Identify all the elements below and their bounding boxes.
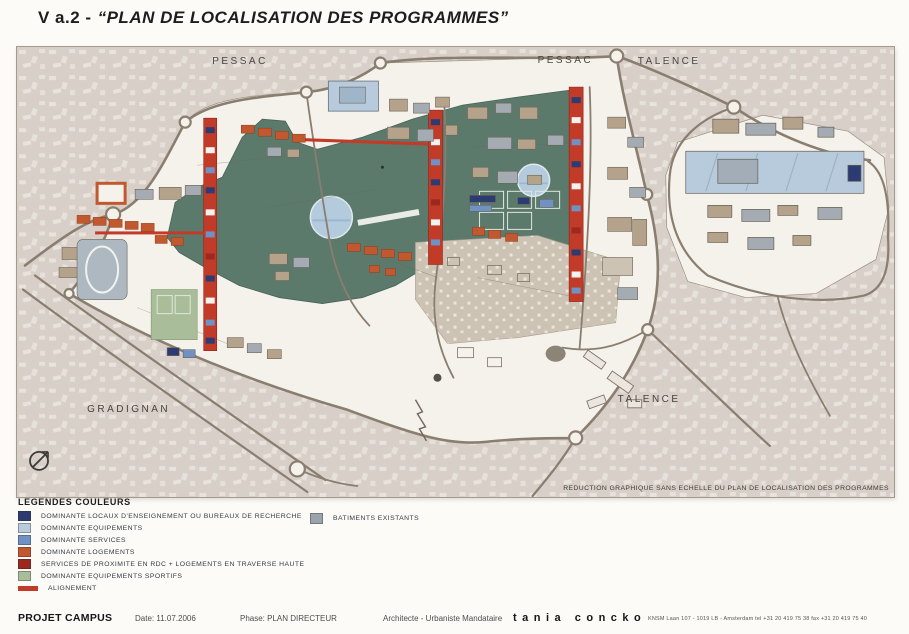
legend-item-logements: DOMINANTE LOGEMENTS: [18, 546, 898, 558]
title-text: “PLAN DE LOCALISATION DES PROGRAMMES”: [98, 8, 509, 27]
project-name: PROJET CAMPUS: [18, 612, 112, 624]
legend-item-label: SERVICES DE PROXIMITE EN RDC + LOGEMENTS…: [41, 561, 304, 568]
legend-item-label: BATIMENTS EXISTANTS: [333, 515, 419, 522]
label-talence-ne: TALENCE: [638, 56, 701, 67]
color-chip: [18, 571, 31, 581]
architect-name: tania concko: [513, 612, 646, 624]
color-chip: [18, 523, 31, 533]
map-drawing: PESSAC PESSAC TALENCE GRADIGNAN TALENCE …: [17, 47, 894, 497]
architect-role: Architecte - Urbaniste Mandataire: [383, 614, 502, 623]
legend-item-batiments-existants: BATIMENTS EXISTANTS: [310, 512, 419, 524]
color-chip: [18, 586, 38, 591]
legend-item-label: DOMINANTE EQUIPEMENTS SPORTIFS: [41, 573, 182, 580]
title-index: V a.2 -: [38, 8, 92, 27]
color-chip: [18, 535, 31, 545]
legend-item-alignement: ALIGNEMENT: [18, 582, 898, 594]
legend-item-label: ALIGNEMENT: [48, 585, 97, 592]
color-chip: [18, 511, 31, 521]
pond: [310, 196, 352, 238]
label-talence-se: TALENCE: [618, 394, 681, 405]
architect-address: KNSM Laan 107 - 1019 LB - Amsterdam tel …: [648, 616, 867, 622]
color-chip: [310, 513, 323, 524]
reduction-note: REDUCTION GRAPHIQUE SANS ECHELLE DU PLAN…: [563, 485, 889, 492]
document-page: V a.2 -“PLAN DE LOCALISATION DES PROGRAM…: [0, 0, 909, 634]
label-pessac-nw: PESSAC: [212, 56, 268, 67]
label-gradignan: GRADIGNAN: [87, 404, 170, 415]
legend-heading: LEGENDES COULEURS: [18, 497, 898, 507]
legend-item-equipements: DOMINANTE EQUIPEMENTS: [18, 522, 898, 534]
legend-item-services: DOMINANTE SERVICES: [18, 534, 898, 546]
label-pessac-n: PESSAC: [538, 55, 594, 66]
legend-item-proximite: SERVICES DE PROXIMITE EN RDC + LOGEMENTS…: [18, 558, 898, 570]
legend-item-label: DOMINANTE LOGEMENTS: [41, 549, 135, 556]
localisation-map: PESSAC PESSAC TALENCE GRADIGNAN TALENCE …: [16, 46, 895, 498]
date-field: Date: 11.07.2006: [135, 614, 196, 623]
legend-item-enseignement: DOMINANTE LOCAUX D'ENSEIGNEMENT OU BUREA…: [18, 510, 898, 522]
phase-field: Phase: PLAN DIRECTEUR: [240, 614, 337, 623]
legend-item-label: DOMINANTE EQUIPEMENTS: [41, 525, 143, 532]
color-chip: [18, 547, 31, 557]
legend: LEGENDES COULEURS DOMINANTE LOCAUX D'ENS…: [18, 497, 898, 594]
legend-item-sportifs: DOMINANTE EQUIPEMENTS SPORTIFS: [18, 570, 898, 582]
page-title: V a.2 -“PLAN DE LOCALISATION DES PROGRAM…: [38, 8, 509, 28]
legend-item-label: DOMINANTE LOCAUX D'ENSEIGNEMENT OU BUREA…: [41, 513, 302, 520]
title-block-footer: PROJET CAMPUS Date: 11.07.2006 Phase: PL…: [0, 608, 909, 634]
legend-item-label: DOMINANTE SERVICES: [41, 537, 126, 544]
color-chip: [18, 559, 31, 569]
